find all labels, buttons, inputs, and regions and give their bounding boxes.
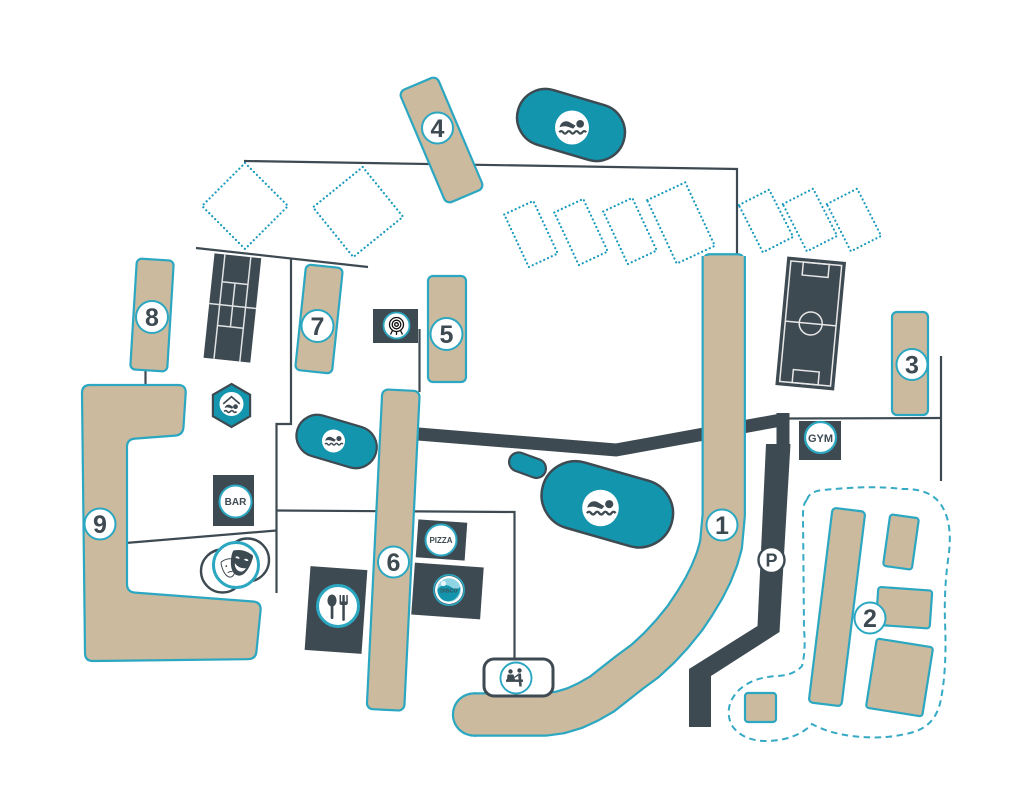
svg-text:GYM: GYM <box>808 433 833 445</box>
svg-text:DISCO: DISCO <box>440 589 458 595</box>
svg-text:9: 9 <box>93 511 107 539</box>
svg-text:4: 4 <box>431 115 445 143</box>
svg-text:8: 8 <box>145 304 159 332</box>
svg-text:7: 7 <box>311 313 325 341</box>
svg-text:P: P <box>765 551 777 571</box>
svg-text:3: 3 <box>905 352 919 380</box>
svg-text:6: 6 <box>387 549 401 577</box>
svg-text:2: 2 <box>863 605 877 633</box>
svg-text:BAR: BAR <box>225 497 247 508</box>
svg-text:PIZZA: PIZZA <box>429 536 452 545</box>
svg-text:5: 5 <box>440 321 454 349</box>
svg-text:1: 1 <box>715 512 729 540</box>
